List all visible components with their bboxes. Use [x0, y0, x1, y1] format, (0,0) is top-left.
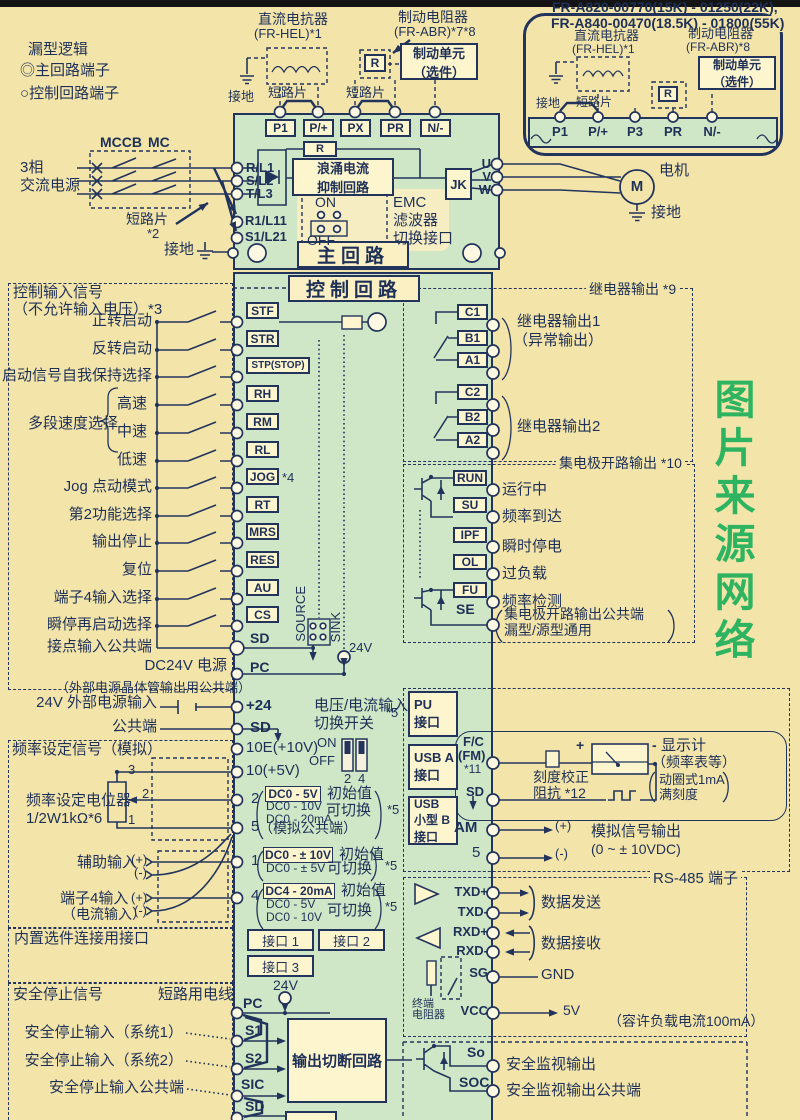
main_circuit-surge-0: 浪涌电流	[294, 158, 392, 177]
main_circuit-emc-label-0: EMC	[393, 195, 426, 212]
rs485-rows-1-term: TXD-	[458, 905, 488, 920]
relay-groups-0-terms-1: B1	[457, 330, 488, 346]
short-bar-label-2: 短路片	[346, 86, 385, 101]
meter-analog-1: (0 ~ ± 10VDC)	[591, 842, 681, 858]
open-terminal-icon: ○	[20, 85, 29, 102]
control-rows-5-term: RL	[246, 441, 279, 458]
top_components-ground: 接地	[228, 90, 254, 105]
brake-unit-box: 制动单元（选件）	[400, 43, 478, 80]
control-rows-12-label: 接点输入公共端	[47, 639, 152, 656]
control-rows-6-label: Jog 点动模式	[64, 479, 152, 496]
relay-groups-0-terms-0: C1	[457, 304, 488, 320]
freq-t1_switch: 可切换	[327, 861, 372, 878]
power24-label: 24V 外部电源输入	[36, 695, 157, 712]
meter-display-0: 显示计	[661, 738, 706, 755]
power24-t24: +24	[246, 698, 271, 715]
control-rows-8-label: 输出停止	[92, 534, 152, 551]
meter-out_minus: (-)	[555, 847, 568, 862]
interfaces-usbb-1: 小型 B	[414, 811, 456, 828]
collector-rows-4-term: FU	[453, 582, 487, 598]
safety-sd: SD	[245, 1099, 264, 1115]
collector-rows-3-term: OL	[453, 554, 487, 570]
main_circuit-emc-label-1: 滤波器	[393, 213, 438, 230]
freq-pot_pins-2: 1	[128, 813, 135, 828]
top_components-r: R	[364, 54, 386, 72]
control-rows-6-note: *4	[282, 471, 294, 486]
brake-unit-box-2: 制动单元（选件）	[698, 56, 776, 90]
control-rows-2-term: STP(STOP)	[246, 357, 310, 374]
control-rows-4-term: RM	[246, 413, 279, 430]
main_circuit-motor_label: 电机	[659, 163, 689, 180]
freq-t1_alt: DC0 - ± 5V	[266, 862, 325, 875]
control-rows-9-term: RES	[246, 551, 279, 568]
rs485-send: 数据发送	[541, 895, 601, 912]
motor-m: M	[629, 179, 645, 196]
top_right-dc_reactor-1: (FR-HEL)*1	[572, 43, 635, 56]
meter-cal-0: 刻度校正	[533, 770, 589, 786]
control-rows-6-term: JOG	[246, 468, 279, 485]
top_right-r: R	[658, 86, 678, 102]
rs485-header: RS-485 端子	[650, 871, 741, 888]
control-rows-3-term: RH	[246, 385, 279, 402]
main_circuit-short_bar_note: *2	[147, 227, 159, 242]
freq-t4_switch: 可切换	[327, 903, 372, 920]
meter-display-1: （频率表等）	[652, 755, 736, 771]
main_circuit-mccb: MCCB	[100, 135, 142, 151]
main_circuit-motor_ground: 接地	[651, 205, 681, 222]
interfaces-usbb-0: USB	[414, 797, 456, 811]
meter-cal-1: 阻抗 *12	[533, 786, 586, 802]
collector-se_note-0: 集电极开路输出公共端	[504, 607, 644, 623]
freq-t1: 1	[251, 853, 259, 870]
control-circuit-title: 控制回路	[288, 275, 420, 302]
collector-rows-3-label: 过负载	[502, 566, 547, 583]
surge-suppress-box: 浪涌电流抑制回路	[292, 158, 394, 196]
relay-groups-1-terms-2: A2	[457, 432, 488, 448]
safety-soc: SOC	[459, 1075, 489, 1091]
safety-rows-0-term: S1	[245, 1023, 262, 1039]
legend-title: 漏型逻辑	[28, 42, 88, 59]
options-ports-1: 接口 2	[318, 929, 385, 951]
rs485-note: （容许负载电流100mA）	[608, 1014, 764, 1030]
top_components-brake_resistor-1: (FR-ABR)*7*8	[394, 25, 476, 40]
control-rows-1-term: STR	[246, 330, 279, 347]
safety-so: So	[467, 1045, 485, 1061]
rs485-rows-3-term: RXD-	[456, 944, 488, 959]
freq-on: ON	[317, 736, 337, 751]
interfaces-pu-0: PU	[414, 697, 456, 712]
freq-t10e: 10E(+10V)	[246, 740, 318, 757]
freq-t2_note: *5	[387, 803, 399, 818]
interfaces-pu-1: 接口	[414, 712, 456, 731]
filled-terminal-icon: ◎	[20, 62, 35, 79]
safety-rows-2-term: SIC	[241, 1077, 264, 1093]
control-rows-4-label: 中速	[117, 424, 147, 441]
freq-pot_pins-1: 2	[142, 787, 149, 802]
control-rows-1-label: 反转启动	[92, 341, 152, 358]
relay-groups-1-terms-0: C2	[457, 384, 488, 400]
meter-out_plus: (+)	[555, 819, 571, 834]
rs485-rows-5-term: VCC	[461, 1004, 488, 1019]
meter-plus: +	[576, 738, 584, 754]
control-rows-2-label: 启动信号自我保持选择	[2, 368, 152, 385]
top_right-brake_resistor-1: (FR-ABR)*8	[686, 41, 750, 54]
control-rows-10-label: 端子4输入选择	[54, 590, 152, 607]
safety-rows-1-label: 安全停止输入（系统2）	[25, 1053, 183, 1070]
main_circuit-aux_terminals-1: S1/L21	[245, 230, 287, 245]
main_circuit-surge-1: 抑制回路	[294, 177, 392, 196]
safety-rows-1-term: S2	[245, 1051, 262, 1067]
main_circuit-jk: JK	[445, 168, 472, 200]
relay-groups-0-terms-2: A1	[457, 352, 488, 368]
top_right-terminals-4: N/-	[697, 125, 727, 140]
freq-t4_initlabel: 初始值	[341, 883, 386, 900]
control-rows-7-label: 第2功能选择	[69, 507, 152, 524]
options-ports-0: 接口 1	[247, 929, 314, 951]
main_circuit-source-1: 交流电源	[20, 178, 80, 195]
safety-v24: 24V	[273, 978, 298, 994]
meter-detail-box	[455, 731, 787, 821]
top_components-brake_unit-1: （选件）	[402, 62, 476, 81]
options-ports-2: 接口 3	[247, 955, 314, 977]
safety-so_label: 安全监视输出	[506, 1057, 596, 1074]
freq-pot-0: 频率设定电位器	[26, 793, 131, 810]
aux-minus: (-)	[134, 866, 147, 881]
rs485-rows-4-term: SG	[469, 966, 488, 981]
control-source: SOURCE	[294, 586, 309, 642]
control-v24: 24V	[349, 641, 372, 656]
rs485-rows-0-term: TXD+	[454, 885, 488, 900]
rs485-v5: 5V	[563, 1003, 580, 1019]
top_right-terminals-0: P1	[545, 125, 575, 140]
control-rows-0-term: STF	[246, 302, 279, 319]
meter-display_note-0: 动圈式1mA	[659, 773, 725, 788]
watermark-text: 图片来源网络	[701, 378, 761, 666]
options-header: 内置选件连接用接口	[14, 931, 149, 948]
freq-off: OFF	[309, 754, 335, 769]
main_circuit-ground: 接地	[164, 242, 194, 259]
control-rows-11-label: 瞬停再启动选择	[47, 617, 152, 634]
partial-box	[285, 1111, 337, 1120]
main_circuit-aux_terminals-0: R1/L11	[245, 214, 287, 229]
relay-groups-1-terms-1: B2	[457, 409, 488, 425]
freq-t4_alts-1: DC0 - 10V	[266, 911, 322, 924]
collector-rows-2-label: 瞬时停电	[502, 539, 562, 556]
power24-sd: SD	[250, 720, 271, 737]
top_components-terminals-4: N/-	[420, 119, 451, 137]
control-rows-0-label: 正转启动	[92, 313, 152, 330]
control-rows-11-term: CS	[246, 606, 279, 623]
safety-header: 安全停止信号	[13, 987, 103, 1004]
rs485-term_res-1: 电阻器	[412, 1009, 445, 1021]
top_right-model_line1: FR-A820-00770(15K) - 01250(22K),	[552, 0, 778, 16]
top_right-short_bar: 短路片	[576, 96, 612, 109]
meter-analog-0: 模拟信号输出	[591, 824, 681, 841]
top_right-ground: 接地	[536, 97, 560, 110]
relay-groups-0-label2: （异常输出）	[513, 333, 603, 350]
main_circuit-mc: MC	[148, 135, 170, 151]
rs485-gnd: GND	[541, 967, 574, 984]
freq-t2_initlabel: 初始值	[327, 786, 372, 803]
control-rows-8-term: MRS	[246, 523, 279, 540]
freq-t2_switch: 可切换	[326, 803, 371, 820]
control-rows-7-term: RT	[246, 496, 279, 513]
top_right-terminals-1: P/+	[583, 125, 613, 140]
power24-common: 公共端	[112, 719, 157, 736]
freq-aux_label: 辅助输入	[77, 855, 137, 872]
control-rows-3-label: 高速	[117, 396, 147, 413]
collector-se: SE	[456, 602, 475, 618]
freq-t1_note: *5	[385, 859, 397, 874]
relay-header: 继电器输出 *9	[586, 282, 679, 298]
control-rows-5-label: 低速	[117, 452, 147, 469]
usb-mini-b-port-box: USB小型 B接口	[408, 796, 458, 845]
control-rows-9-label: 复位	[122, 562, 152, 579]
collector-rows-0-label: 运行中	[502, 482, 547, 499]
top_components-terminals-2: PX	[340, 119, 371, 137]
top_right-terminals-3: PR	[658, 125, 688, 140]
meter-display_note-1: 满刻度	[659, 788, 698, 803]
top_components-brake_unit-0: 制动单元	[402, 43, 476, 62]
control-sink: SINK	[329, 612, 344, 642]
safety-wire: 短路用电线	[158, 987, 233, 1004]
freq-t4: 4	[251, 888, 259, 905]
pu-port-box: PU接口	[408, 691, 458, 737]
collector-rows-2-term: IPF	[453, 527, 487, 543]
freq-t4_label-1: （电流输入）	[62, 907, 146, 923]
top_right-terminals-2: P3	[620, 125, 650, 140]
safety-rows-2-label: 安全停止输入公共端	[49, 1080, 184, 1097]
main_circuit-emc-off: OFF	[307, 233, 335, 249]
power24-switch_label-1: 切换开关	[314, 716, 374, 733]
safety-soc_label: 安全监视输出公共端	[506, 1083, 641, 1100]
top_right-brake_unit-0: 制动单元	[700, 56, 774, 73]
meter-minus: -	[652, 738, 657, 754]
main_circuit-input_terminals-2: T/L3	[246, 187, 273, 202]
safety-pc: PC	[243, 996, 262, 1012]
top_components-dc_reactor-1: (FR-HEL)*1	[254, 27, 322, 42]
top_right-brake_unit-1: （选件）	[700, 73, 774, 90]
interfaces-usba-1: 接口	[414, 765, 456, 784]
meter-note11: *11	[464, 763, 481, 776]
main_circuit-output_terminals-2: W	[479, 183, 491, 198]
freq-t4_note: *5	[385, 900, 397, 915]
relay-groups-1-label: 继电器输出2	[517, 419, 600, 436]
freq-pot_pins-0: 3	[128, 763, 135, 778]
interfaces-usbb-2: 接口	[414, 828, 456, 845]
collector-rows-1-label: 频率到达	[502, 509, 562, 526]
control-rows-13-term: PC	[250, 660, 269, 676]
relay-groups-0-label: 继电器输出1	[517, 314, 600, 331]
legend-item-control: ○控制回路端子	[20, 86, 119, 103]
rs485-recv: 数据接收	[541, 936, 601, 953]
control-rows-10-term: AU	[246, 579, 279, 596]
freq-pot-1: 1/2W1kΩ*6	[26, 811, 102, 828]
meter-am: AM	[454, 820, 477, 837]
usb-a-port-box: USB A接口	[408, 744, 458, 790]
safety-box: 输出切断回路	[287, 1018, 387, 1103]
meter-t5: 5	[472, 845, 480, 862]
collector-se_note-1: 漏型/源型通用	[504, 623, 592, 639]
control-group_label: 多段速度选择	[28, 416, 118, 433]
inverter-wiring-diagram: 漏型逻辑 ◎主回路端子 ○控制回路端子 图片来源网络 主回路控制回路直流电抗器(…	[0, 0, 800, 1120]
top_components-terminals-1: P/+	[303, 119, 334, 137]
rs485-rows-2-term: RXD+	[453, 925, 488, 940]
freq-t2: 2	[251, 791, 259, 808]
main_circuit-r: R	[303, 141, 337, 157]
collector-rows-0-term: RUN	[453, 470, 487, 486]
safety-rows-0-label: 安全停止输入（系统1）	[25, 1025, 183, 1042]
legend-item-main: ◎主回路端子	[20, 63, 110, 80]
freq-header: 频率设定信号（模拟）	[12, 742, 162, 759]
freq-t10: 10(+5V)	[246, 763, 300, 780]
top_components-terminals-0: P1	[265, 119, 296, 137]
collector-rows-1-term: SU	[453, 497, 487, 513]
short-bar-label-1: 短路片	[268, 86, 307, 101]
meter-sd: SD	[466, 785, 484, 800]
interfaces-usba-0: USB A	[414, 750, 456, 765]
control-rows-12-term: SD	[250, 631, 269, 647]
main_circuit-source-0: 3相	[20, 160, 43, 177]
control-input_header-0: 控制输入信号	[13, 285, 103, 302]
control-rows-13-label: DC24V 电源	[144, 658, 227, 675]
freq-t5_label: （模拟公共端）	[259, 821, 357, 837]
main_circuit-emc-label-2: 切换接口	[393, 231, 453, 248]
power24-switch_label-0: 电压/电流输入	[314, 698, 408, 715]
main_circuit-emc-on: ON	[315, 195, 336, 211]
collector-header: 集电极开路输出 *10	[556, 456, 685, 472]
top_components-terminals-3: PR	[380, 119, 411, 137]
